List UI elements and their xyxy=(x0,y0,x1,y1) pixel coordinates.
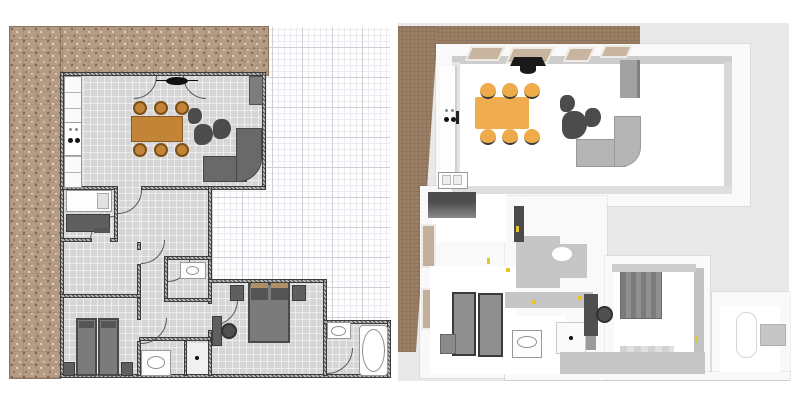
master-bed-3d xyxy=(620,271,662,319)
hall-floor-3d xyxy=(505,292,593,308)
door-handle-3d xyxy=(532,300,536,304)
bottom-hall-floor-3d xyxy=(560,352,705,374)
office-chair-3d xyxy=(596,306,613,323)
dining-chair-3d xyxy=(524,83,540,99)
radiator-3d xyxy=(760,324,786,346)
dining-chair-3d xyxy=(524,129,540,145)
sideboard-3d xyxy=(428,192,476,218)
shower-drain-3d xyxy=(569,336,573,340)
ceiling-lamp-3d xyxy=(510,57,546,66)
kitchen-counter-3d xyxy=(440,66,457,188)
sink-bowl-3d xyxy=(517,336,537,348)
sink-bowl-3d xyxy=(442,175,451,185)
bathtub-3d xyxy=(736,312,757,358)
dining-chair-3d xyxy=(502,83,518,99)
burner-knob-3d xyxy=(445,109,448,112)
door-handle-3d xyxy=(506,268,510,272)
door-handle-3d xyxy=(487,258,490,264)
living-wall-bottom-face xyxy=(452,186,732,194)
ceiling-lamp-bowl-3d xyxy=(520,66,536,74)
toilet-3d xyxy=(551,246,573,262)
oven-slot-3d xyxy=(456,111,459,124)
side-window-3d xyxy=(421,224,436,268)
master-wall-top-face xyxy=(612,264,696,272)
door-handle-3d xyxy=(578,296,582,300)
hall-wardrobe-base-3d xyxy=(586,336,596,350)
dining-chair-3d xyxy=(480,83,496,99)
floor-plan-3d-pane xyxy=(0,0,800,409)
dining-chair-3d xyxy=(502,129,518,145)
nightstand-3d xyxy=(440,334,456,354)
living-wall-right-face xyxy=(724,62,732,194)
skylight-window xyxy=(465,46,506,61)
door-handle-3d xyxy=(695,336,698,342)
floor-plan-canvas xyxy=(0,0,800,409)
single-bed-3d xyxy=(478,293,503,357)
door-handle-3d xyxy=(516,226,519,232)
dining-chair-3d xyxy=(480,129,496,145)
dining-table-3d xyxy=(475,97,529,129)
burner-knob-3d xyxy=(451,109,454,112)
hall-door-3d xyxy=(514,206,524,242)
sink-bowl-3d xyxy=(453,175,462,185)
skylight-window xyxy=(599,45,633,58)
wardrobe-3d xyxy=(620,60,640,98)
burner-3d xyxy=(444,117,449,122)
